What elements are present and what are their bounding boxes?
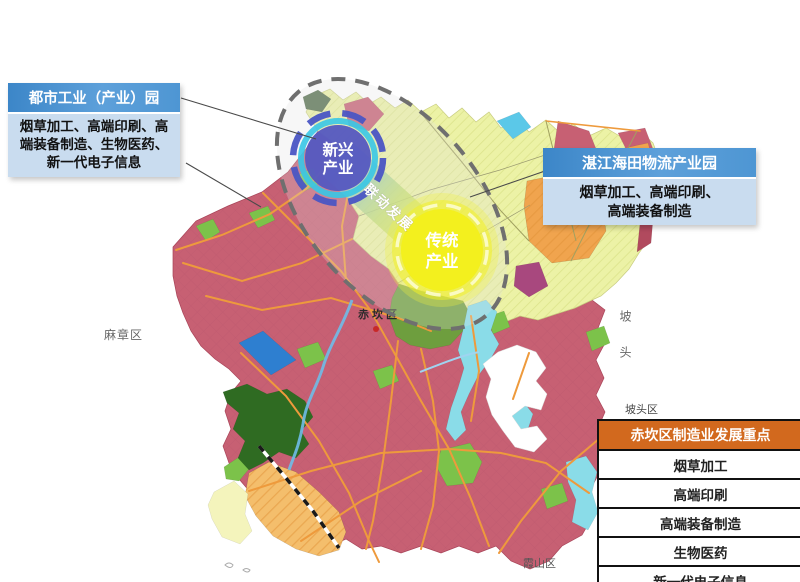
callout-logistics-body: 烟草加工、高端印刷、 高端装备制造 [543,179,756,225]
manufacturing-focus-table: 赤坎区制造业发展重点 烟草加工 高端印刷 高端装备制造 生物医药 新一代电子信息 [597,419,800,582]
traditional-bubble-label-line2: 产业 [426,251,459,271]
focus-table-title: 赤坎区制造业发展重点 [599,421,800,451]
emerging-bubble-label-line2: 产业 [322,158,353,177]
traditional-bubble-label-line1: 传统 [425,230,460,250]
focus-table-row: 烟草加工 [599,451,800,480]
callout-urban-title: 都市工业（产业）园 [8,83,180,114]
callout-logistics-title: 湛江海田物流产业园 [543,148,756,179]
focus-table-row: 生物医药 [599,538,800,567]
map-label-potou-district: 坡头区 [625,401,658,417]
callout-logistics-park: 湛江海田物流产业园 烟草加工、高端印刷、 高端装备制造 [543,148,756,225]
map-label-mazhang: 麻章区 [104,326,143,343]
focus-table-row: 高端装备制造 [599,509,800,538]
map-label-xiashan: 霞山区 [523,555,556,571]
callout-urban-body: 烟草加工、高端印刷、高 端装备制造、生物医药、 新一代电子信息 [8,114,180,177]
map-label-potou: 坡头 [617,310,634,382]
infographic-canvas: 赤坎区 传统 产业 新兴 产业 联动发展 都市工业（产业）园 烟草加工、高端印刷… [0,0,800,582]
focus-table-row: 新一代电子信息 [599,567,800,582]
islands [225,563,250,572]
district-seat-dot [373,326,379,332]
callout-urban-industrial-park: 都市工业（产业）园 烟草加工、高端印刷、高 端装备制造、生物医药、 新一代电子信… [8,83,180,177]
emerging-bubble-label-line1: 新兴 [322,140,354,159]
focus-table-row: 高端印刷 [599,480,800,509]
